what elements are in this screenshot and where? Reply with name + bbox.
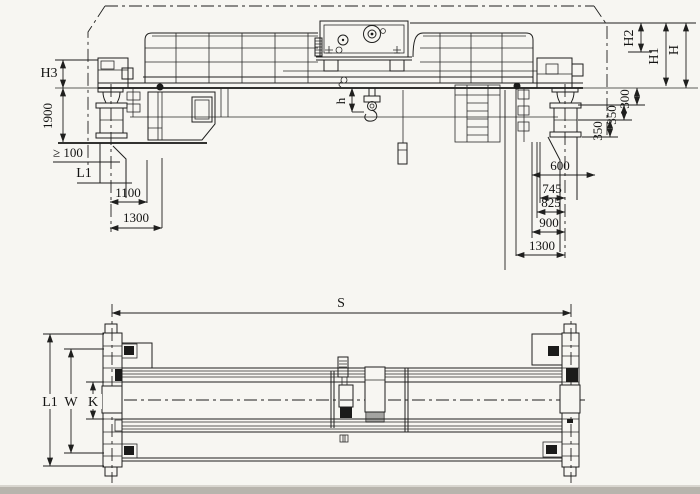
maintenance-ladder [455,85,529,142]
elevation-dimensions-left: H3 1900 ≥ 100 L1 1100 1300 [40,60,162,228]
walkway-railing [145,33,533,83]
dim-label-1900: 1900 [40,103,55,129]
dim-label-S: S [337,296,345,311]
dim-label-h: h [333,97,348,104]
crane-dimension-drawing-sheet: H3 1900 ≥ 100 L1 1100 1300 h H2 [0,0,700,494]
dim-label-1300b: 1300 [529,238,555,253]
plan-view: S L1 W K [40,296,585,483]
wheel-block [546,445,557,454]
plan-left-end-truck [102,304,152,483]
buffer [564,467,576,476]
buffer [105,324,117,333]
dim-label-H: H [667,45,682,55]
pendant-control [398,90,407,164]
dim-label-ge100: ≥ 100 [53,145,83,160]
hoist-frame [365,367,385,412]
wheel-block [124,446,134,455]
wheel-block [124,346,134,355]
trolley-wheel [324,60,338,71]
dim-label-H1: H1 [647,47,662,64]
section-dot [157,84,164,91]
dim-label-W: W [64,395,78,410]
rope-drum-plan [366,412,384,422]
hook-icon [365,110,377,121]
dim-label-900: 900 [539,215,559,230]
dim-label-H3: H3 [40,66,57,81]
dim-label-350a: 350 [604,105,619,125]
buffer [105,467,117,476]
elevation-view: H3 1900 ≥ 100 L1 1100 1300 h H2 [40,6,698,270]
dim-label-K: K [88,395,98,410]
section-dot [514,83,521,90]
dim-label-plan-L1: L1 [42,395,58,410]
crane-technical-drawing: H3 1900 ≥ 100 L1 1100 1300 h H2 [0,0,700,494]
dim-label-1100: 1100 [115,185,141,200]
trolley-wheel [390,60,404,71]
dim-label-745: 745 [542,181,562,196]
dim-label-L1: L1 [76,166,92,181]
hoist-trolley [315,21,412,71]
dim-label-600: 600 [550,158,570,173]
dim-label-300: 300 [617,89,632,109]
buffer [572,64,583,76]
anchor-mark-icon [325,46,333,53]
dim-label-H2: H2 [622,29,637,46]
hook-height-dimension: h [333,88,364,112]
operator-cab [127,88,228,140]
dim-label-825: 825 [541,195,561,210]
scan-artifact-band [0,487,700,494]
anchor-mark-icon [393,46,401,53]
buffer [564,324,576,333]
plan-right-end-truck [532,304,580,483]
dim-label-1300: 1300 [123,210,149,225]
plan-walkway [122,458,562,461]
rope-guide-icon [341,77,347,83]
dim-label-350b: 350 [590,121,605,141]
wheel-block [548,346,559,356]
